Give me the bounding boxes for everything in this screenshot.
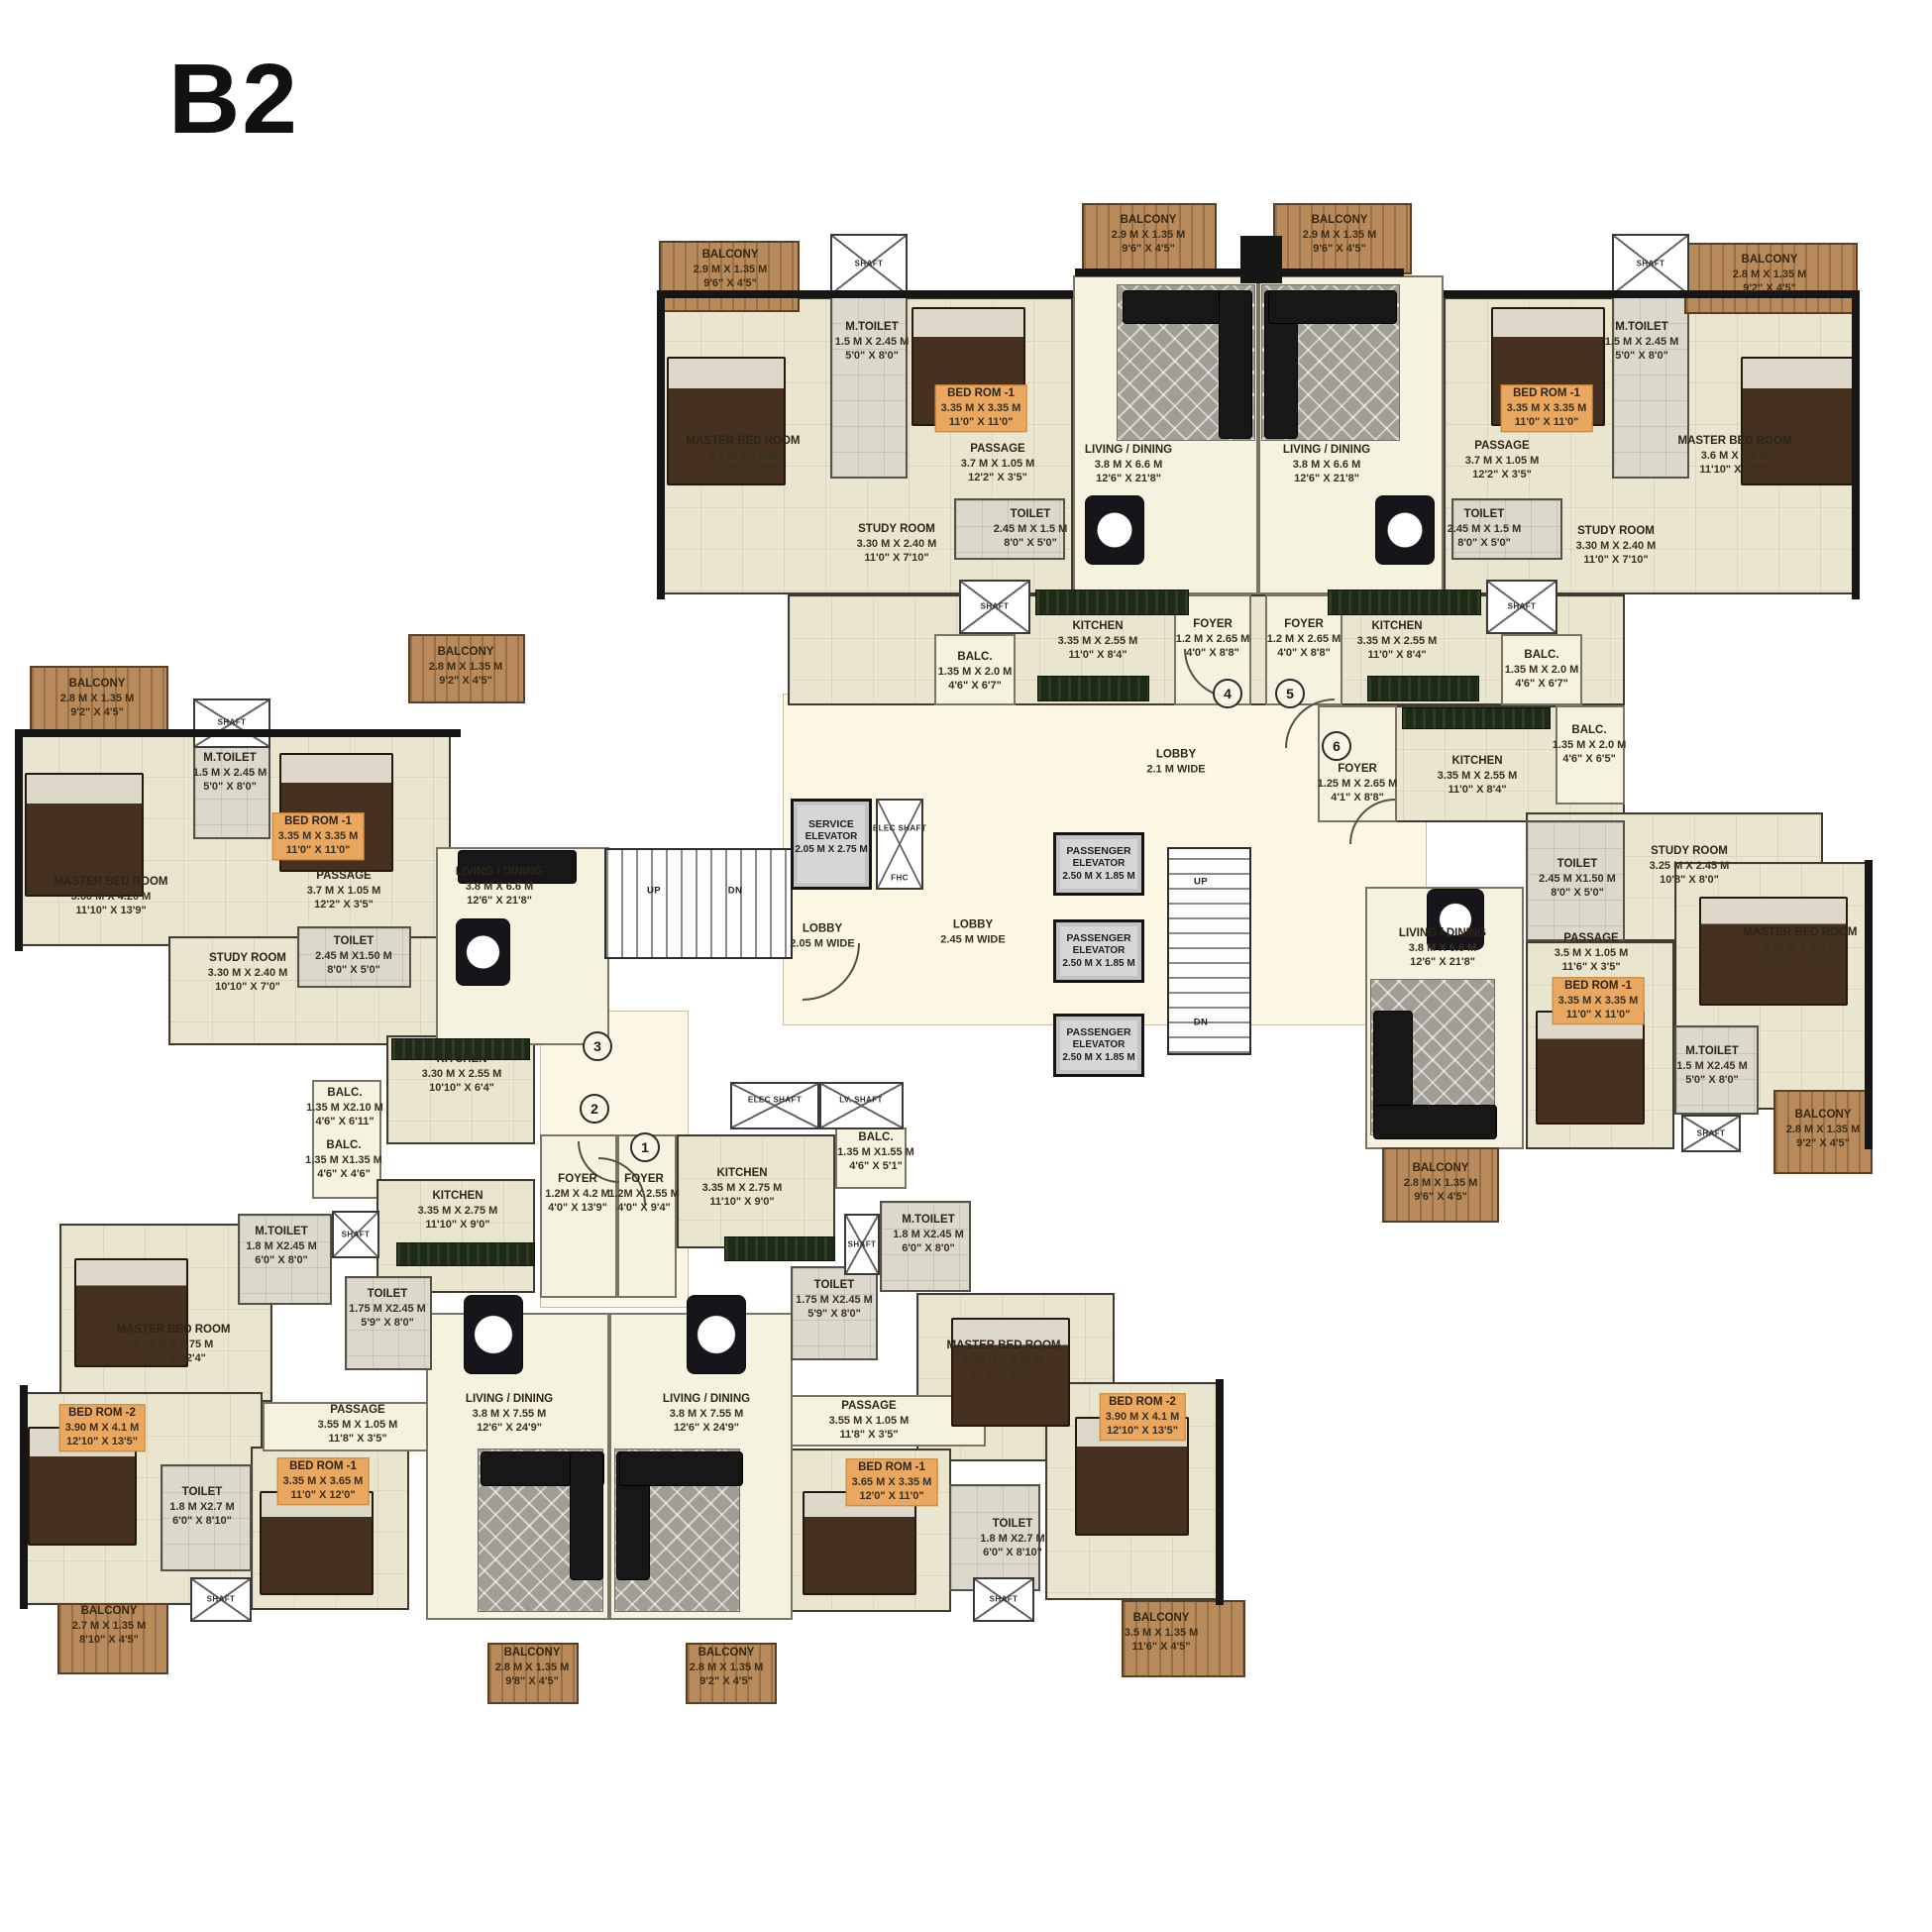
room-label: TOILET2.45 M X 1.5 M8'0" X 5'0" — [1448, 507, 1522, 551]
shaft-label: FHC — [891, 874, 909, 883]
room-label: BALC.1.35 M X1.35 M4'6" X 4'6" — [305, 1138, 382, 1182]
sofa — [1268, 290, 1397, 324]
room-label: LIVING / DINING3.8 M X 6.6 M12'6" X 21'8… — [1085, 443, 1172, 486]
unit-entrance-number: 2 — [580, 1094, 609, 1124]
room-label: STUDY ROOM3.30 M X 2.40 M10'10" X 7'0" — [208, 951, 288, 995]
wall-segment — [1865, 860, 1873, 1149]
dining-table — [687, 1295, 746, 1374]
sofa — [570, 1451, 603, 1580]
room-label: BED ROM -13.35 M X 3.35 M11'0" X 11'0" — [272, 812, 365, 860]
room-label: PASSENGERELEVATOR2.50 M X 1.85 M — [1062, 1026, 1134, 1064]
room-label: BED ROM -23.90 M X 4.1 M12'10" X 13'5" — [59, 1404, 146, 1451]
room-label: TOILET1.75 M X2.45 M5'9" X 8'0" — [796, 1278, 873, 1322]
shaft-label: SHAFT — [1637, 260, 1665, 268]
room-label: BED ROM -13.65 M X 3.35 M12'0" X 11'0" — [846, 1458, 938, 1506]
room-label: LOBBY2.1 M WIDE — [1146, 747, 1205, 776]
room-label: M.TOILET1.5 M X2.45 M5'0" X 8'0" — [1676, 1044, 1748, 1088]
shaft-label: SHAFT — [981, 602, 1010, 611]
shaft-label: SHAFT — [1697, 1129, 1726, 1138]
kitchen-counter — [1035, 590, 1189, 615]
room-label: MASTER BED ROOM3.60 M X 4.20 M11'10" X 1… — [54, 875, 168, 918]
room-label: BALC.1.35 M X 2.0 M4'6" X 6'5" — [1553, 723, 1627, 767]
wall-segment — [1075, 268, 1404, 276]
room-label: PASSAGE3.7 M X 1.05 M12'2" X 3'5" — [1465, 439, 1540, 483]
room-label: KITCHEN3.30 M X 2.55 M10'10" X 6'4" — [422, 1052, 502, 1096]
room-label: BALCONY2.8 M X 1.35 M9'2" X 4'5" — [429, 645, 503, 689]
room-label: BALC.1.35 M X 2.0 M4'6" X 6'7" — [938, 650, 1013, 694]
room-label: TOILET2.45 M X 1.5 M8'0" X 5'0" — [994, 507, 1068, 551]
room-label: BALCONY3.5 M X 1.35 M11'6" X 4'5" — [1125, 1611, 1199, 1655]
shaft-label: SHAFT — [342, 1231, 371, 1239]
dining-table — [1375, 495, 1435, 565]
kitchen-counter — [1402, 707, 1551, 729]
wall-segment — [15, 729, 461, 737]
room-label: M.TOILET1.5 M X 2.45 M5'0" X 8'0" — [1605, 320, 1679, 364]
stair-direction-label: UP — [1194, 877, 1208, 888]
room-label: PASSAGE3.7 M X 1.05 M12'2" X 3'5" — [307, 869, 381, 912]
room-label: TOILET1.8 M X2.7 M6'0" X 8'10" — [980, 1517, 1044, 1560]
room-label: LIVING / DINING3.8 M X 6.6 M12'6" X 21'8… — [1283, 443, 1370, 486]
room-label: BALCONY2.8 M X 1.35 M9'6" X 4'5" — [1404, 1161, 1478, 1205]
room-label: FOYER1.25 M X 2.65 M4'1" X 8'8" — [1318, 762, 1398, 805]
room-label: PASSAGE3.5 M X 1.05 M11'6" X 3'5" — [1555, 931, 1629, 975]
room-label: KITCHEN3.35 M X 2.75 M11'10" X 9'0" — [418, 1189, 498, 1233]
room-label: LIVING / DINING3.8 M X 6.6 M12'6" X 21'8… — [1399, 926, 1486, 970]
room-label: STUDY ROOM3.30 M X 2.40 M11'0" X 7'10" — [1576, 524, 1657, 568]
room-label: PASSAGE3.55 M X 1.05 M11'8" X 3'5" — [318, 1403, 398, 1447]
room-label: MASTER BED ROOM3.75 M X 3.75 M12'4" X 12… — [117, 1323, 231, 1366]
room-label: BED ROM -23.90 M X 4.1 M12'10" X 13'5" — [1100, 1393, 1186, 1441]
shaft-label: SHAFT — [990, 1595, 1019, 1604]
room-label: PASSENGERELEVATOR2.50 M X 1.85 M — [1062, 845, 1134, 883]
room-label: KITCHEN3.35 M X 2.75 M11'10" X 9'0" — [702, 1166, 783, 1210]
room-label: STUDY ROOM3.25 M X 2.45 M10'8" X 8'0" — [1650, 844, 1730, 888]
unit-entrance-number: 4 — [1213, 679, 1242, 708]
sofa — [1373, 1105, 1497, 1139]
room-label: BED ROM -13.35 M X 3.35 M11'0" X 11'0" — [1553, 977, 1645, 1024]
room-label: M.TOILET1.8 M X2.45 M6'0" X 8'0" — [893, 1213, 964, 1256]
room-label: BALCONY2.9 M X 1.35 M9'6" X 4'5" — [1303, 213, 1377, 257]
bed — [1536, 1011, 1645, 1125]
room-label: SERVICEELEVATOR2.05 M x 2.75 M — [795, 818, 867, 856]
room-label: TOILET2.45 M X1.50 M8'0" X 5'0" — [315, 934, 392, 978]
floor-plan: B2 BALCONY2.9 M X 1.35 M9'6" X 4'5"BALCO… — [0, 0, 1932, 1932]
room-label: TOILET1.8 M X2.7 M6'0" X 8'10" — [169, 1485, 234, 1529]
room-label: LOBBY2.05 M WIDE — [790, 921, 854, 950]
kitchen-counter — [1037, 676, 1149, 701]
shaft-label: LV. SHAFT — [839, 1096, 883, 1105]
room-label: BALC.1.35 M X2.10 M4'6" X 6'11" — [306, 1086, 383, 1129]
room-label: BED ROM -13.35 M X 3.65 M11'0" X 12'0" — [277, 1457, 370, 1505]
kitchen-counter — [396, 1242, 535, 1266]
room-label: LIVING / DINING3.8 M X 7.55 M12'6" X 24'… — [466, 1392, 553, 1436]
room-label: FOYER1.2 M X 2.65 M4'0" X 8'8" — [1267, 617, 1342, 661]
wall-segment — [1240, 236, 1282, 283]
shaft-area — [730, 1082, 819, 1129]
dining-table — [464, 1295, 523, 1374]
room-label: FOYER1.2 M X 2.65 M4'0" X 8'8" — [1176, 617, 1250, 661]
unit-entrance-number: 3 — [583, 1031, 612, 1061]
room-label: BALC.1.35 M X 2.0 M4'6" X 6'7" — [1505, 648, 1579, 692]
room-label: BALCONY2.8 M X 1.35 M9'2" X 4'5" — [690, 1646, 764, 1689]
room-label: M.TOILET1.5 M X 2.45 M5'0" X 8'0" — [835, 320, 910, 364]
wall-segment — [15, 729, 23, 951]
room-label: BED ROM -13.35 M X 3.35 M11'0" X 11'0" — [1501, 384, 1593, 432]
room-label: PASSAGE3.7 M X 1.05 M12'2" X 3'5" — [961, 442, 1035, 485]
room-label: BALCONY2.8 M X 1.35 M9'2" X 4'5" — [1786, 1108, 1861, 1151]
dining-table — [1085, 495, 1144, 565]
stair-direction-label: DN — [1194, 1018, 1209, 1028]
sofa — [1219, 290, 1252, 439]
kitchen-counter — [1328, 590, 1481, 615]
shaft-label: ELEC SHAFT — [748, 1096, 802, 1105]
room-label: FOYER1.2M X 4.2 M4'0" X 13'9" — [545, 1172, 609, 1216]
room-label: BALC.1.35 M X1.55 M4'6" X 5'1" — [837, 1130, 914, 1174]
room-label: BALCONY2.9 M X 1.35 M9'6" X 4'5" — [694, 248, 768, 291]
stair-direction-label: DN — [728, 886, 743, 897]
wall-segment — [657, 290, 665, 599]
shaft-label: SHAFT — [1508, 602, 1537, 611]
room-label: KITCHEN3.35 M X 2.55 M11'0" X 8'4" — [1058, 619, 1138, 663]
unit-entrance-number: 5 — [1275, 679, 1305, 708]
shaft-label: ELEC SHAFT — [873, 824, 926, 833]
shaft-label: SHAFT — [855, 260, 884, 268]
wall-segment — [1216, 1379, 1224, 1605]
staircase-area — [604, 848, 793, 959]
room-label: BALCONY2.9 M X 1.35 M9'6" X 4'5" — [1112, 213, 1186, 257]
room-label: BALCONY2.8 M X 1.35 M9'2" X 4'5" — [1733, 253, 1807, 296]
room-label: BALCONY2.8 M X 1.35 M9'2" X 4'5" — [60, 677, 135, 720]
shaft-label: SHAFT — [207, 1595, 236, 1604]
room-label: PASSAGE3.55 M X 1.05 M11'8" X 3'5" — [829, 1399, 910, 1443]
unit-entrance-number: 1 — [630, 1132, 660, 1162]
unit-entrance-number: 6 — [1322, 731, 1351, 761]
room-label: TOILET1.75 M X2.45 M5'9" X 8'0" — [349, 1287, 426, 1331]
room-label: MASTER BED ROOM3.6 M X 4.2 M11'10" X 13'… — [1678, 434, 1792, 478]
room-label: FOYER1.2M X 2.55 M4'0" X 9'4" — [608, 1172, 680, 1216]
bed — [260, 1491, 374, 1595]
dining-table — [456, 918, 510, 986]
room-label: LOBBY2.45 M WIDE — [940, 917, 1005, 946]
kitchen-counter — [724, 1236, 835, 1261]
wall-segment — [1852, 290, 1860, 599]
shaft-label: SHAFT — [218, 718, 247, 727]
wall-segment — [657, 290, 1073, 298]
stair-direction-label: UP — [647, 886, 661, 897]
kitchen-counter — [1367, 676, 1479, 701]
wall-segment — [20, 1385, 28, 1609]
shaft-area — [819, 1082, 904, 1129]
staircase-area — [1167, 847, 1251, 1055]
room-label: MASTER BED ROOM3.6 M X 4.2 M11'10" X 13'… — [687, 434, 801, 478]
room-label: M.TOILET1.5 M X 2.45 M5'0" X 8'0" — [193, 751, 268, 795]
room-label: BED ROM -13.35 M X 3.35 M11'0" X 11'0" — [935, 384, 1027, 432]
room-label: PASSENGERELEVATOR2.50 M X 1.85 M — [1062, 932, 1134, 970]
sofa — [619, 1451, 743, 1486]
room-label: KITCHEN3.35 M X 2.55 M11'0" X 8'4" — [1357, 619, 1438, 663]
room-label: TOILET2.45 M X1.50 M8'0" X 5'0" — [1539, 857, 1616, 901]
shaft-label: SHAFT — [848, 1240, 877, 1249]
room-label: BALCONY2.7 M X 1.35 M8'10" X 4'5" — [72, 1604, 147, 1648]
room-label: LIVING / DINING3.8 M X 6.6 M12'6" X 21'8… — [456, 865, 543, 909]
plan-title: B2 — [168, 50, 299, 149]
room-label: LIVING / DINING3.8 M X 7.55 M12'6" X 24'… — [663, 1392, 750, 1436]
room-label: BALCONY2.8 M X 1.35 M9'8" X 4'5" — [495, 1646, 570, 1689]
room-label: M.TOILET1.8 M X2.45 M6'0" X 8'0" — [246, 1225, 317, 1268]
room-label: STUDY ROOM3.30 M X 2.40 M11'0" X 7'10" — [857, 522, 937, 566]
room-label: MASTER BED ROOM3.60 M X 4.2 M11'10" X 13… — [1744, 925, 1858, 969]
bed — [803, 1491, 916, 1595]
room-label: KITCHEN3.35 M X 2.55 M11'0" X 8'4" — [1438, 754, 1518, 798]
room-label: MASTER BED ROOM3.75 M X 3.75 M12'4" X 12… — [947, 1339, 1061, 1382]
